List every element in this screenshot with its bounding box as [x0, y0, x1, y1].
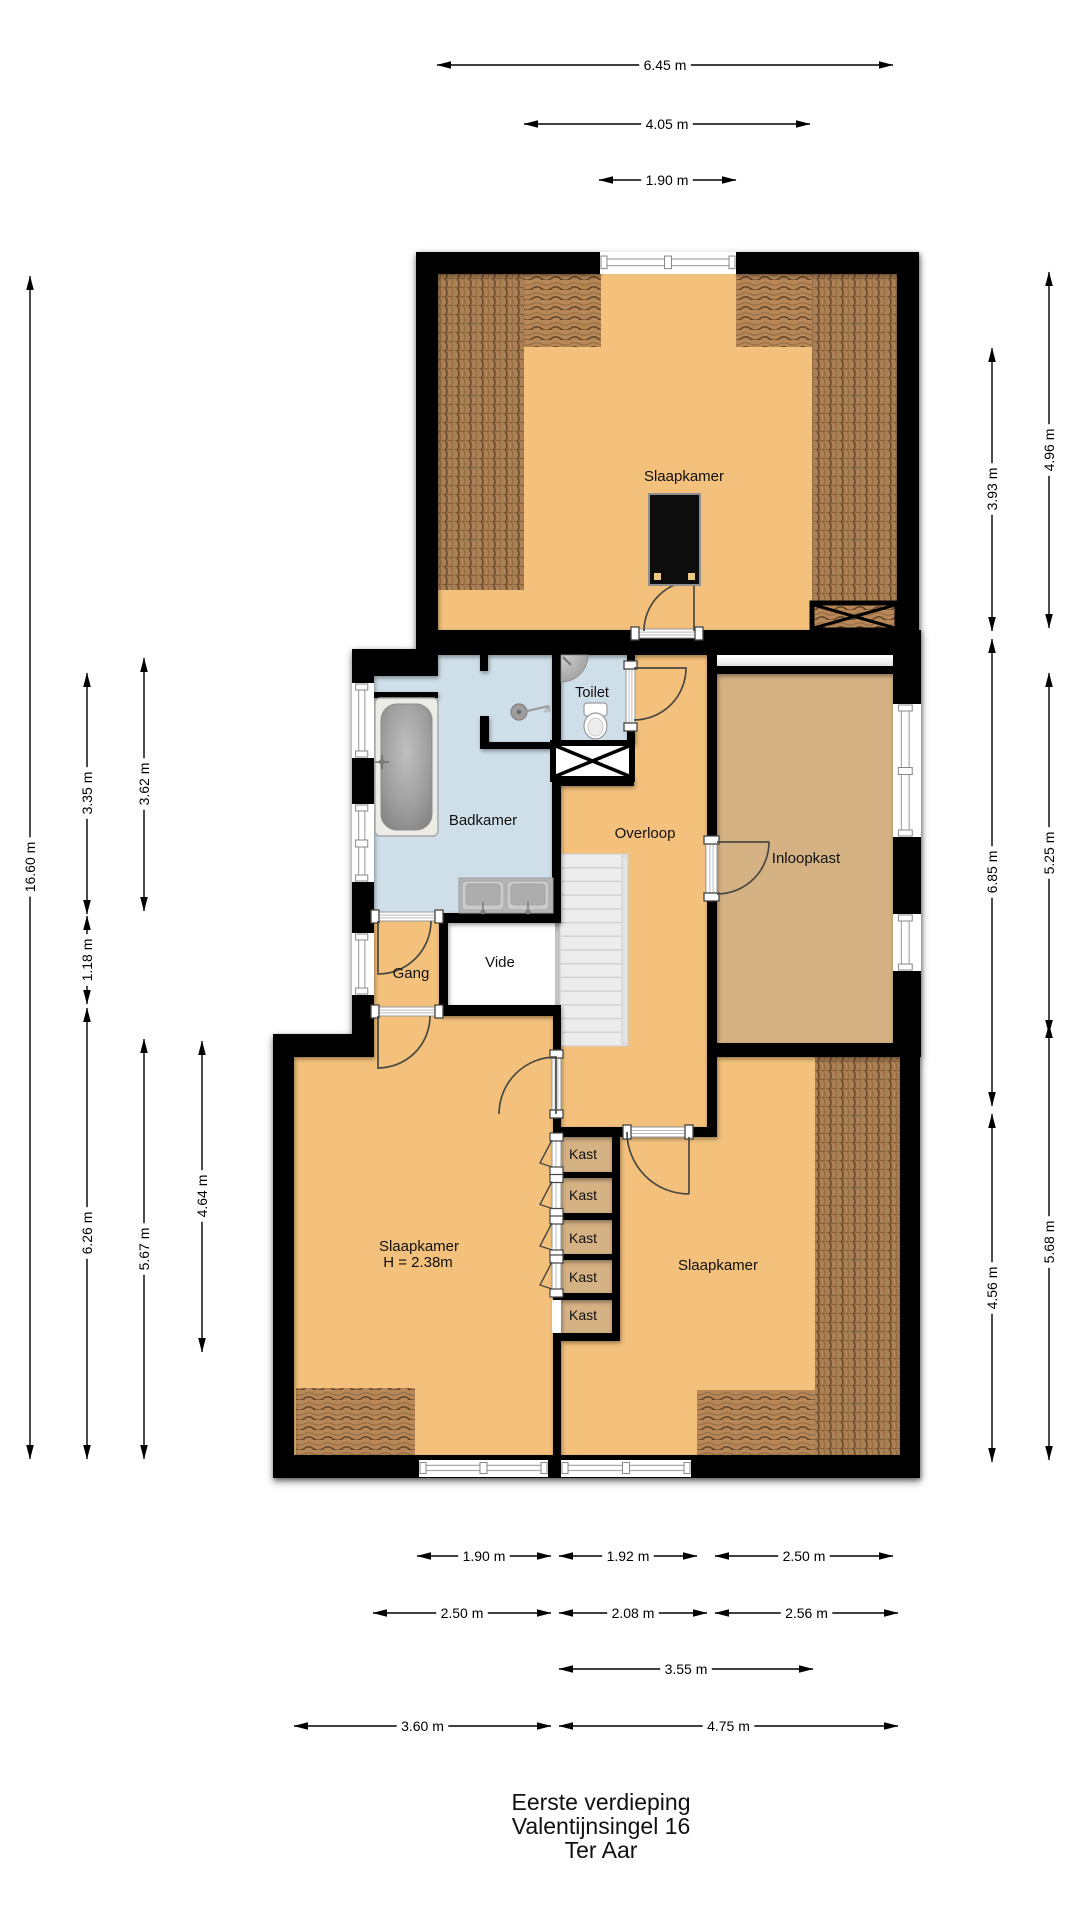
svg-text:Badkamer: Badkamer [449, 812, 517, 829]
svg-text:1.90 m: 1.90 m [463, 1548, 506, 1564]
svg-text:1.92 m: 1.92 m [607, 1548, 650, 1564]
svg-text:3.93 m: 3.93 m [984, 468, 1000, 511]
svg-text:Valentijnsingel 16: Valentijnsingel 16 [512, 1813, 691, 1839]
svg-text:Ter Aar: Ter Aar [565, 1837, 638, 1863]
svg-text:Gang: Gang [393, 965, 430, 982]
svg-text:2.50 m: 2.50 m [783, 1548, 826, 1564]
svg-text:Slaapkamer: Slaapkamer [678, 1257, 758, 1274]
svg-text:Eerste verdieping: Eerste verdieping [512, 1789, 691, 1815]
svg-text:Kast: Kast [569, 1269, 597, 1285]
svg-text:Inloopkast: Inloopkast [772, 850, 841, 867]
svg-text:Overloop: Overloop [615, 825, 676, 842]
svg-text:1.90 m: 1.90 m [646, 172, 689, 188]
svg-text:5.25 m: 5.25 m [1041, 832, 1057, 875]
svg-text:6.45 m: 6.45 m [644, 57, 687, 73]
svg-text:Slaapkamer: Slaapkamer [644, 468, 724, 485]
svg-text:16.60 m: 16.60 m [22, 842, 38, 893]
svg-text:4.75 m: 4.75 m [707, 1718, 750, 1734]
svg-text:2.56 m: 2.56 m [785, 1605, 828, 1621]
svg-text:2.08 m: 2.08 m [612, 1605, 655, 1621]
svg-text:Toilet: Toilet [575, 685, 609, 701]
svg-text:4.05 m: 4.05 m [646, 116, 689, 132]
svg-text:3.35 m: 3.35 m [79, 772, 95, 815]
svg-text:1.18 m: 1.18 m [79, 939, 95, 982]
svg-text:Kast: Kast [569, 1307, 597, 1323]
svg-text:3.60 m: 3.60 m [401, 1718, 444, 1734]
svg-text:Slaapkamer: Slaapkamer [379, 1238, 459, 1255]
svg-text:2.50 m: 2.50 m [441, 1605, 484, 1621]
svg-text:4.56 m: 4.56 m [984, 1267, 1000, 1310]
svg-text:5.67 m: 5.67 m [136, 1228, 152, 1271]
svg-text:Vide: Vide [485, 954, 515, 971]
svg-text:3.62 m: 3.62 m [136, 763, 152, 806]
svg-text:5.68 m: 5.68 m [1041, 1221, 1057, 1264]
svg-text:Kast: Kast [569, 1146, 597, 1162]
svg-text:4.64 m: 4.64 m [194, 1175, 210, 1218]
svg-text:H = 2.38m: H = 2.38m [383, 1254, 453, 1271]
svg-text:4.96 m: 4.96 m [1041, 429, 1057, 472]
svg-text:Kast: Kast [569, 1187, 597, 1203]
svg-text:6.26 m: 6.26 m [79, 1212, 95, 1255]
svg-text:6.85 m: 6.85 m [984, 851, 1000, 894]
svg-text:3.55 m: 3.55 m [665, 1661, 708, 1677]
svg-text:Kast: Kast [569, 1230, 597, 1246]
